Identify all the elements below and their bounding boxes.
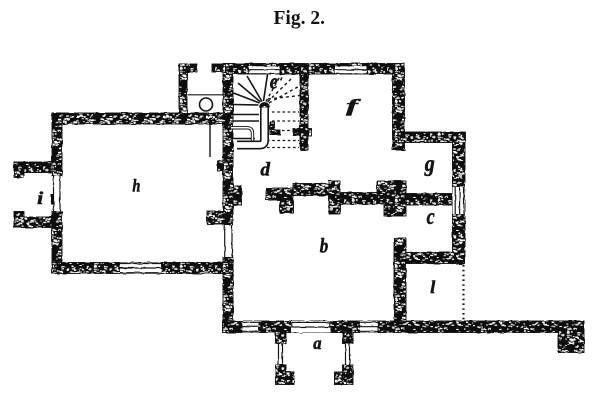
svg-text:d: d <box>261 160 271 181</box>
svg-text:Fig. 2.: Fig. 2. <box>274 8 326 29</box>
svg-text:g: g <box>424 151 435 177</box>
svg-text:a: a <box>313 333 321 353</box>
svg-text:c: c <box>427 204 435 230</box>
svg-text:b: b <box>320 233 329 257</box>
svg-text:e: e <box>270 69 278 94</box>
svg-text:h: h <box>132 175 140 195</box>
svg-text:l: l <box>430 277 435 297</box>
svg-text:i: i <box>37 188 43 208</box>
